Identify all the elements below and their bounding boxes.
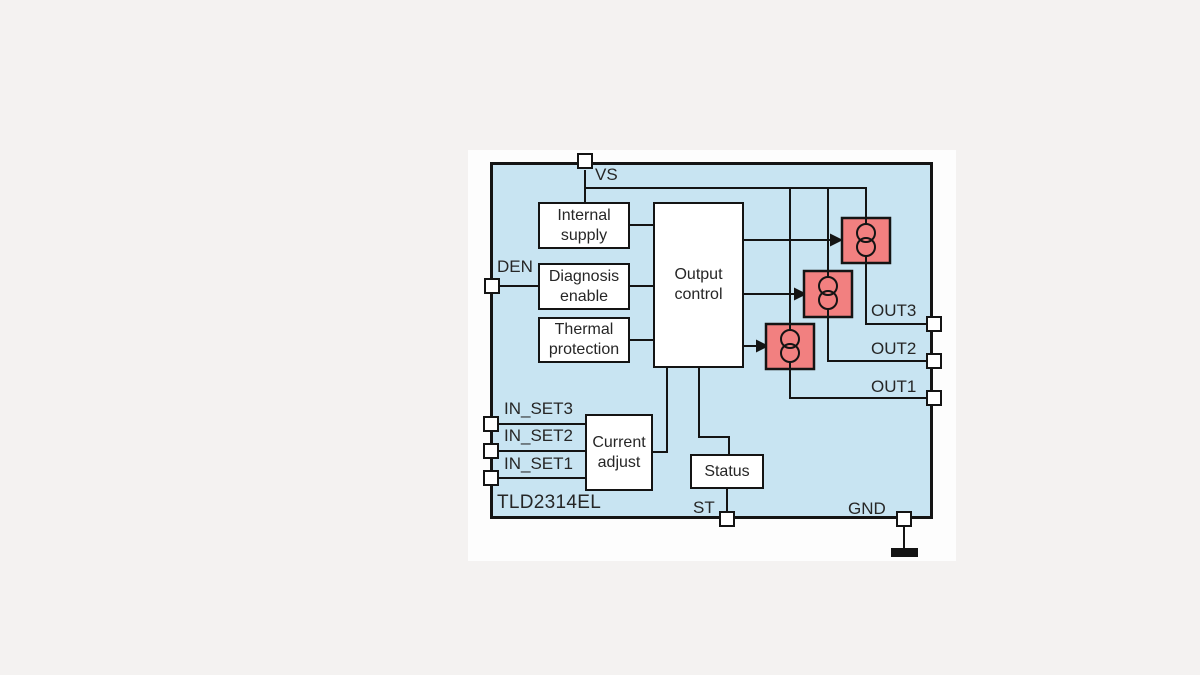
pin-label-out1: OUT1 [871,377,916,397]
pin-gnd [896,511,912,527]
block-current-adjust: Current adjust [585,414,653,491]
block-status: Status [690,454,764,489]
pin-out2 [926,353,942,369]
pin-label-vs: VS [595,165,618,185]
pin-label-in-set3: IN_SET3 [504,399,573,419]
current-source-icon [804,271,852,317]
pin-label-out2: OUT2 [871,339,916,359]
pin-label-in-set1: IN_SET1 [504,454,573,474]
current-source-icon [766,324,814,369]
pin-out1 [926,390,942,406]
block-output-control: Output control [653,202,744,368]
ground-symbol [891,526,918,557]
pin-label-out3: OUT3 [871,301,916,321]
pin-label-st: ST [693,498,715,518]
pin-den [484,278,500,294]
current-source-icon [842,218,890,263]
pin-in-set2 [483,443,499,459]
pin-label-den: DEN [497,257,533,277]
pin-in-set3 [483,416,499,432]
wire-status [699,368,729,513]
wires-blocks-to-output-control [629,225,655,340]
part-number-label: TLD2314EL [497,492,601,514]
pin-in-set1 [483,470,499,486]
block-internal-supply: Internal supply [538,202,630,249]
block-diagram-figure: Internal supply Diagnosis enable Thermal… [0,0,1200,675]
pin-label-gnd: GND [848,499,886,519]
wire-vs-net [584,170,934,398]
pin-label-in-set2: IN_SET2 [504,426,573,446]
wire-current-adjust [652,368,667,452]
pin-st [719,511,735,527]
block-diagnosis-enable: Diagnosis enable [538,263,630,310]
pin-vs [577,153,593,169]
pin-out3 [926,316,942,332]
block-thermal-protection: Thermal protection [538,317,630,363]
